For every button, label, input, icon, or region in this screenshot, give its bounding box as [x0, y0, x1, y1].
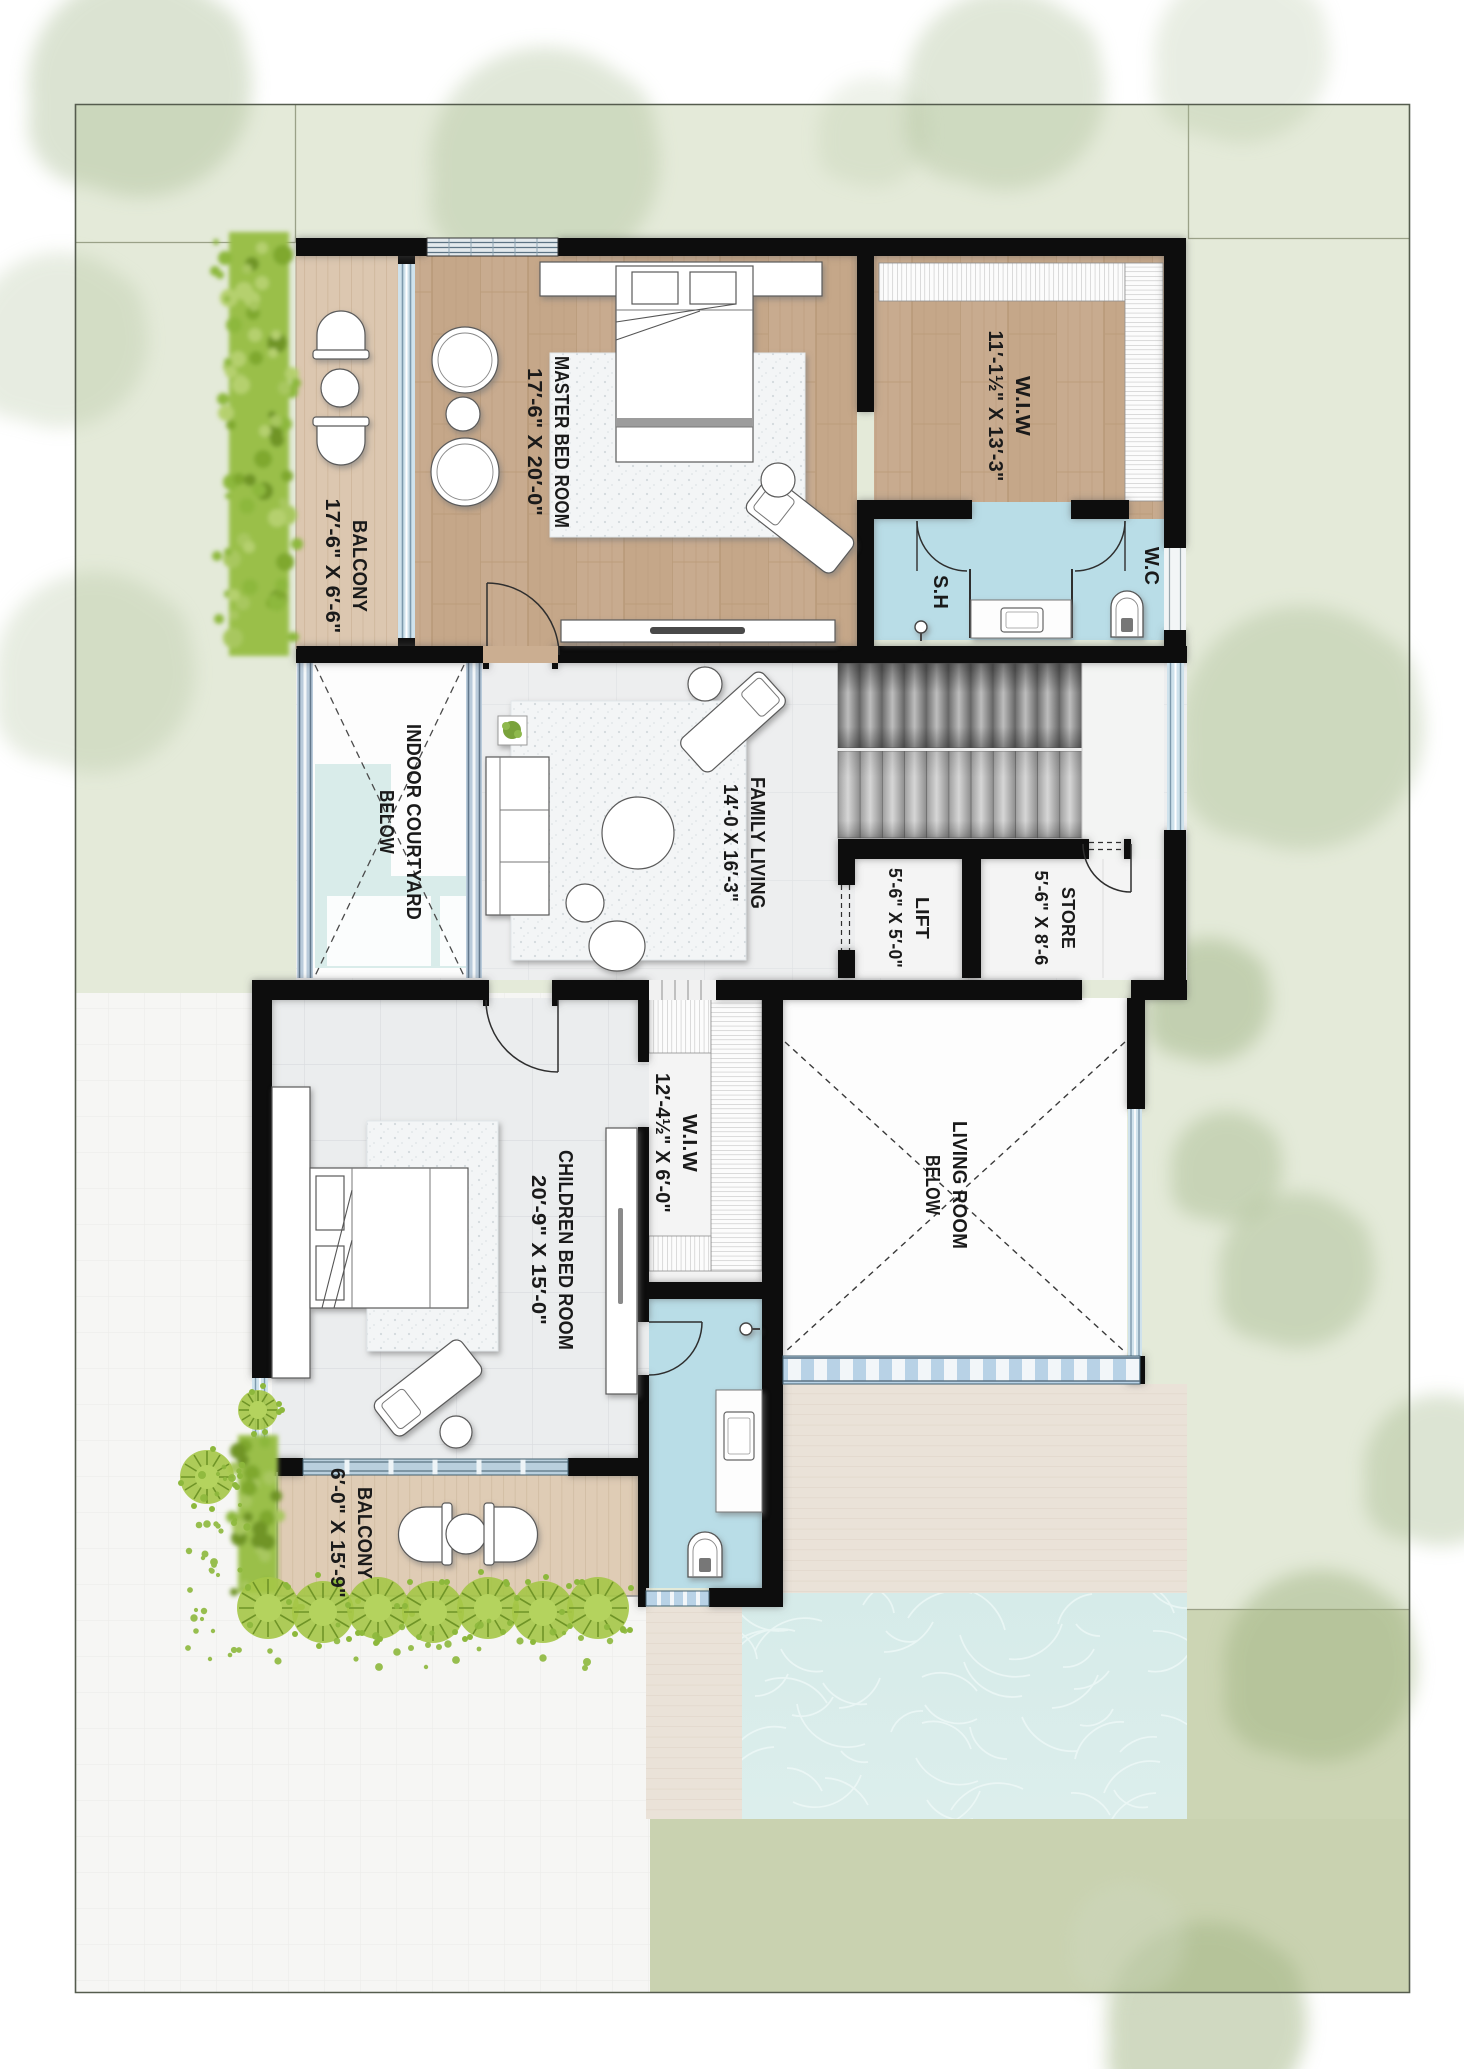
svg-text:S.H: S.H — [929, 575, 951, 609]
svg-text:W.C: W.C — [1140, 547, 1162, 585]
